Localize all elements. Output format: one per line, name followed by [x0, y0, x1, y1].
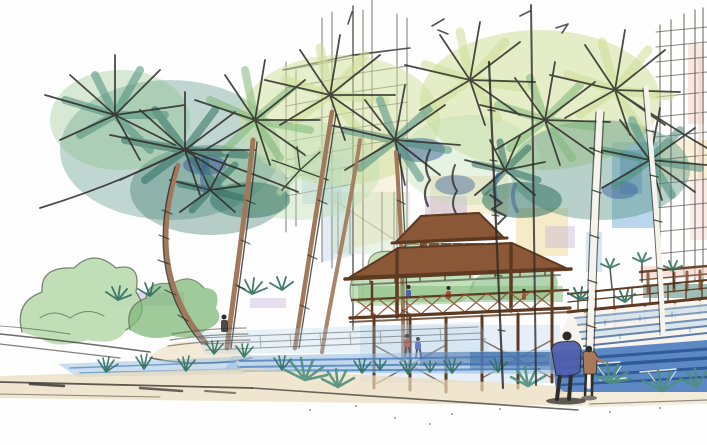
- concept-sketch: [0, 0, 707, 445]
- terrace-figure: [221, 315, 228, 333]
- ink-speckles: [309, 405, 661, 425]
- adult-head: [563, 332, 572, 341]
- figure-shadow: [546, 398, 586, 405]
- figure-shadow: [581, 396, 597, 401]
- right-tower-pink-wash: [690, 180, 707, 240]
- child-torso: [583, 351, 597, 374]
- purple-wash-2: [545, 226, 575, 248]
- child-head: [586, 346, 592, 352]
- shrub-mass-left: [20, 258, 142, 345]
- concept-sketch-canvas: [0, 0, 707, 445]
- adult-torso: [552, 341, 581, 376]
